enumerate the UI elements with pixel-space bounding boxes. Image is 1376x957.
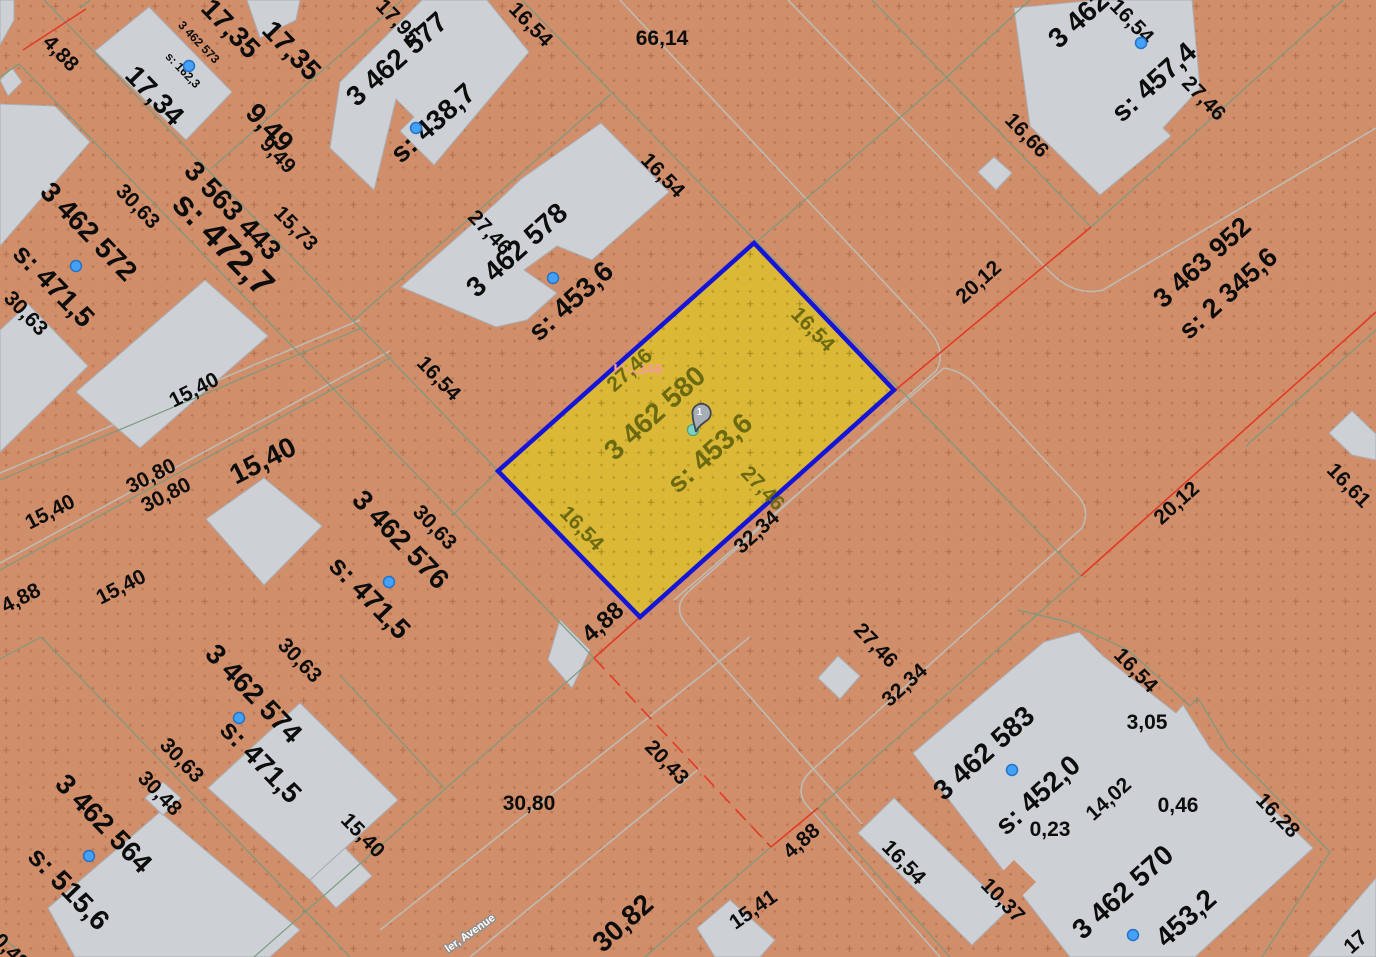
svg-text:1: 1 <box>697 407 703 418</box>
svg-text:3,05: 3,05 <box>1127 711 1168 734</box>
svg-text:0,46: 0,46 <box>1158 794 1199 817</box>
svg-text:0,23: 0,23 <box>1030 818 1071 841</box>
svg-text:30,80: 30,80 <box>503 792 556 815</box>
svg-text:66,14: 66,14 <box>636 27 689 50</box>
